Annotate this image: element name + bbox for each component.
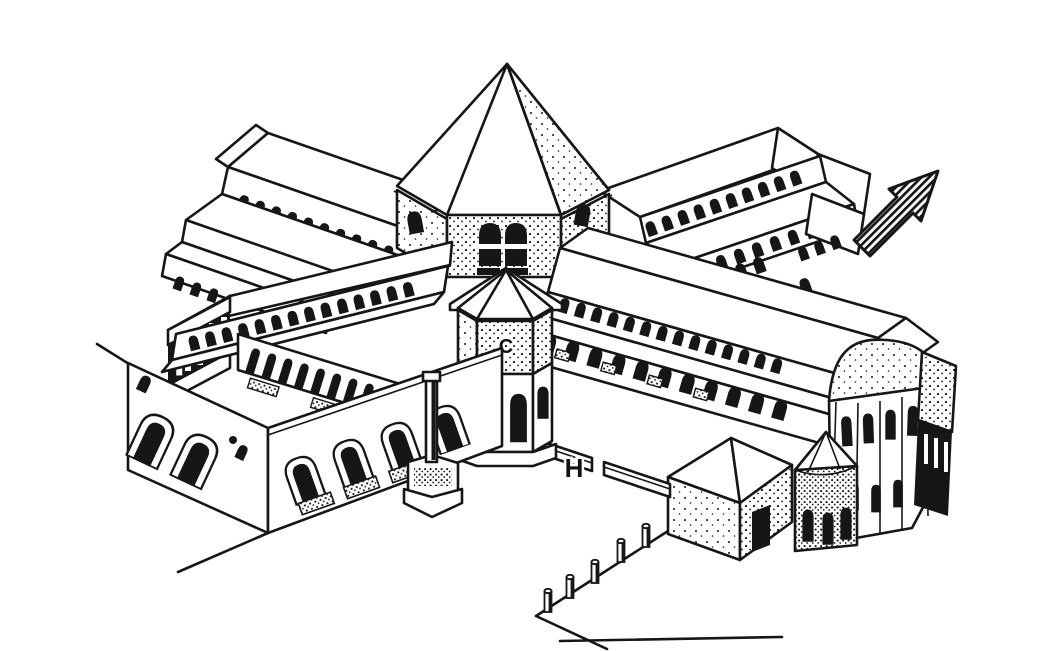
architectural-drawing: H C	[0, 0, 1048, 651]
chapel-door	[752, 505, 770, 552]
gate-posts	[545, 524, 650, 612]
label-h: H	[565, 453, 584, 483]
side-apse-upper	[918, 352, 956, 432]
basilica-isometric-svg: H C	[0, 0, 1048, 651]
square-chapel	[668, 438, 792, 560]
